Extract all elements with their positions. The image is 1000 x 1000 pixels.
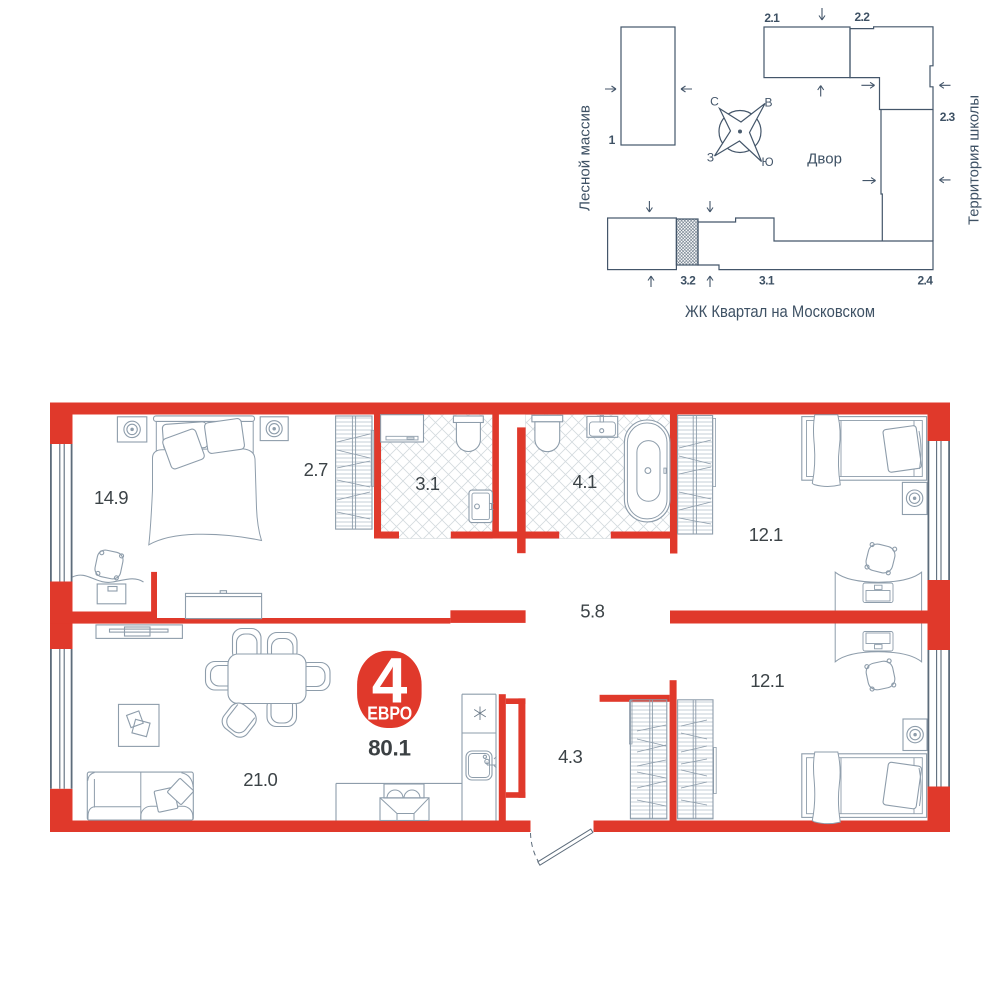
svg-text:12.1: 12.1	[750, 670, 784, 691]
svg-text:2.7: 2.7	[304, 459, 328, 480]
svg-text:2.2: 2.2	[854, 10, 870, 24]
svg-text:В: В	[764, 96, 772, 110]
svg-text:14.9: 14.9	[94, 487, 128, 508]
svg-text:21.0: 21.0	[243, 769, 277, 790]
svg-text:4.1: 4.1	[573, 471, 597, 492]
svg-text:ЕВРО: ЕВРО	[367, 704, 412, 724]
svg-text:3.2: 3.2	[680, 273, 696, 287]
svg-text:2.4: 2.4	[917, 273, 933, 287]
svg-text:С: С	[710, 95, 719, 109]
svg-text:3.1: 3.1	[759, 273, 775, 287]
svg-text:ЖК Квартал на Московском: ЖК Квартал на Московском	[685, 302, 875, 321]
svg-text:12.1: 12.1	[749, 524, 783, 545]
svg-text:Двор: Двор	[807, 151, 842, 168]
svg-text:Ю: Ю	[761, 155, 773, 169]
svg-text:2.1: 2.1	[764, 11, 780, 25]
svg-text:2.3: 2.3	[940, 110, 956, 124]
svg-text:Территория школы: Территория школы	[966, 95, 983, 225]
svg-text:Лесной массив: Лесной массив	[577, 105, 594, 211]
svg-text:80.1: 80.1	[368, 735, 411, 760]
svg-text:З: З	[707, 151, 714, 165]
svg-text:4.3: 4.3	[558, 746, 582, 767]
svg-text:3.1: 3.1	[415, 473, 439, 494]
svg-text:1: 1	[609, 133, 616, 147]
svg-text:5.8: 5.8	[580, 601, 604, 622]
